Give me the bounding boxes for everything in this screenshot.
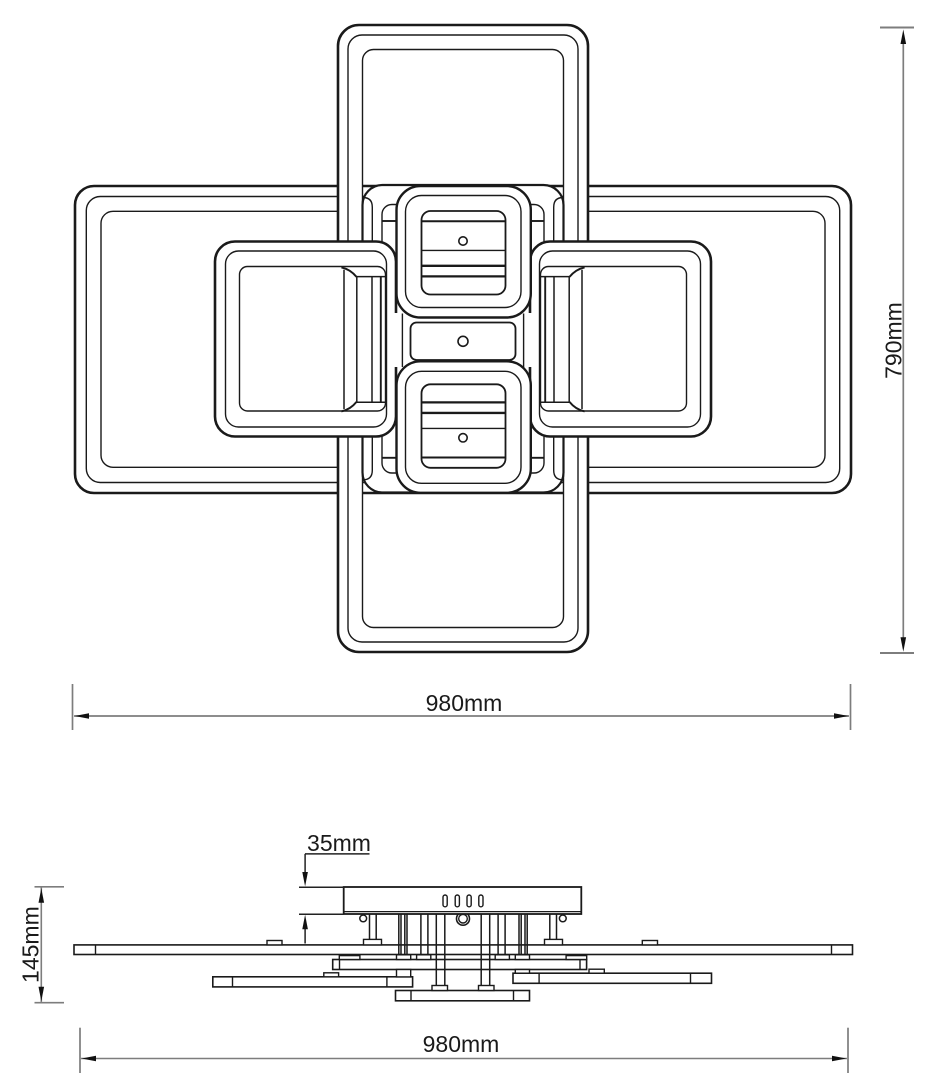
svg-text:980mm: 980mm xyxy=(423,1031,500,1057)
svg-text:35mm: 35mm xyxy=(307,830,371,856)
svg-text:980mm: 980mm xyxy=(426,690,503,716)
svg-text:145mm: 145mm xyxy=(18,906,44,983)
svg-text:790mm: 790mm xyxy=(881,302,907,379)
